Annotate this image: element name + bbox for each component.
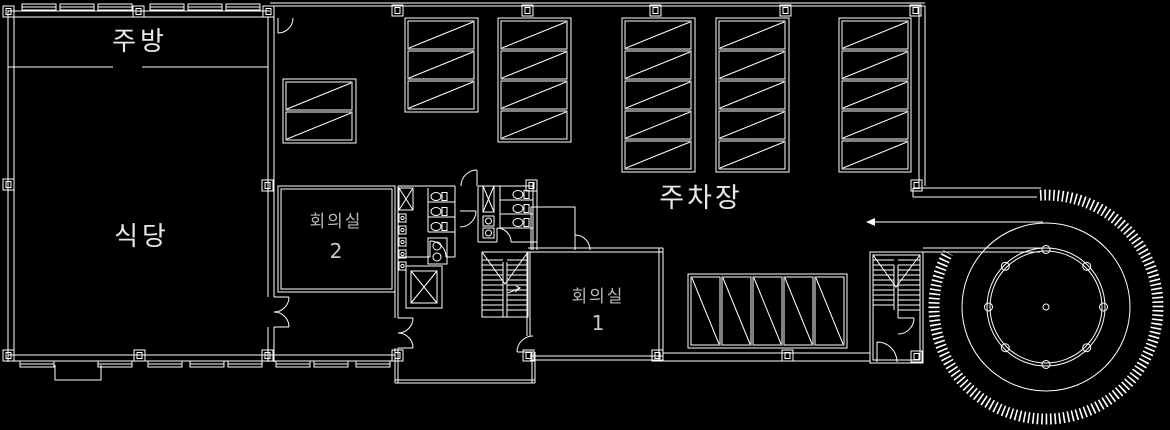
toilet-core — [395, 170, 537, 383]
stairwell-main — [482, 252, 528, 317]
stairwell-ramp-side — [870, 252, 923, 363]
ramp-outer-hatched-wall — [934, 195, 1158, 419]
elevator — [406, 266, 442, 308]
kitchen-dining-walls — [8, 17, 293, 362]
parking-label: 주차장 — [659, 183, 743, 214]
floor-plan-drawing: 주방 식당 회의실 2 회의실 1 주차장 — [0, 0, 1170, 430]
room-labels: 주방 식당 회의실 2 회의실 1 주차장 — [112, 27, 743, 335]
meeting-room-1-number: 1 — [592, 311, 605, 335]
meeting-room-1 — [517, 207, 663, 360]
kitchen-label: 주방 — [112, 27, 168, 57]
entrance-lobby — [395, 318, 535, 383]
meeting-room-2-number: 2 — [330, 239, 343, 263]
meeting-room-1-label: 회의실 — [572, 287, 625, 307]
dining-label: 식당 — [114, 222, 170, 252]
spiral-ramp — [866, 195, 1158, 419]
meeting-room-2-label: 회의실 — [310, 212, 363, 232]
ramp-direction-arrow — [866, 218, 875, 226]
floor-plan-canvas: 주방 식당 회의실 2 회의실 1 주차장 — [0, 0, 1170, 430]
ramp-circles — [873, 222, 1130, 391]
